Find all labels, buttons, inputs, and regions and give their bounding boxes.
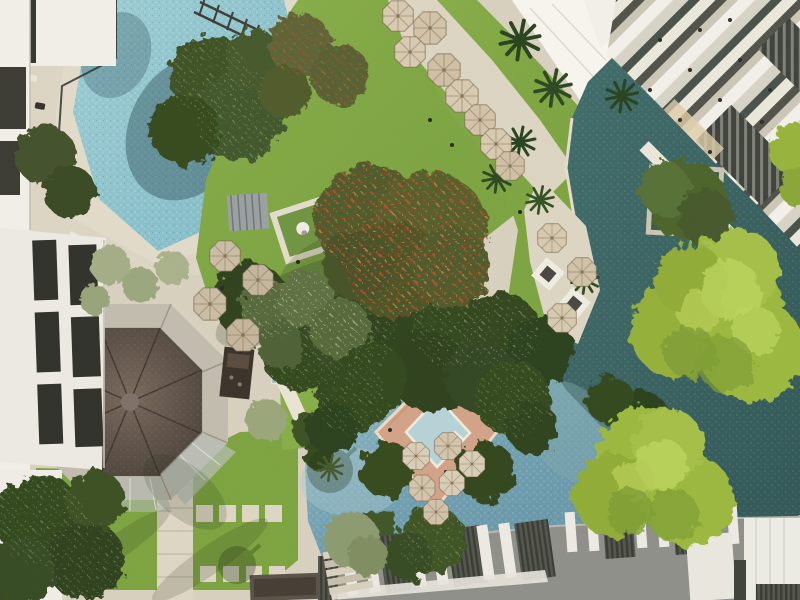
aerial-photo — [0, 0, 800, 600]
aerial-photo-canvas — [0, 0, 800, 600]
grain-overlay — [0, 0, 800, 600]
